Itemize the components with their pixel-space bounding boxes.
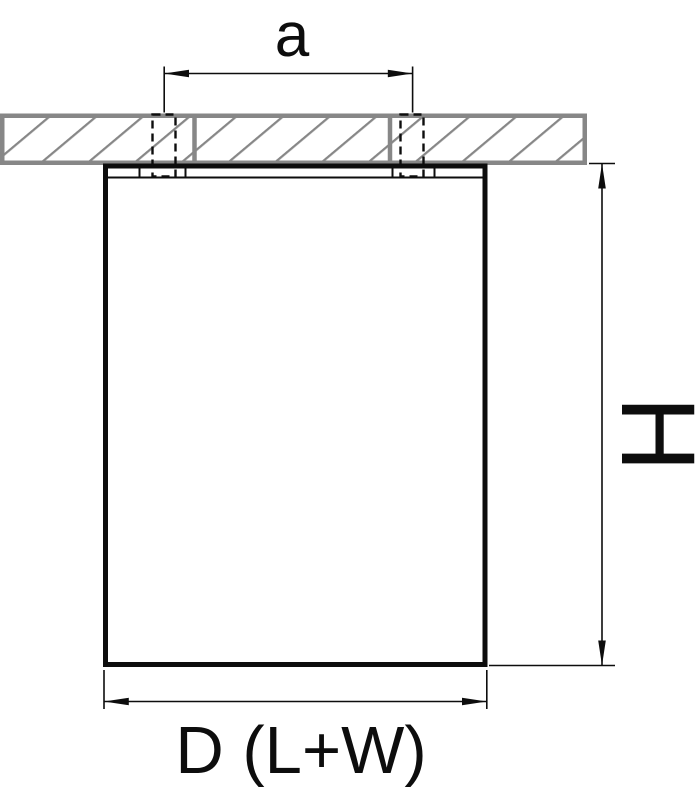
dimension-d: D (L+W) [104,670,487,788]
dimension-a-arrow-right [388,70,413,77]
dimension-a-arrow-left [164,70,189,77]
dimension-a: a [164,1,412,113]
dimension-h: H [489,164,699,666]
dimension-a-label: a [275,1,310,70]
dimension-d-label: D (L+W) [175,713,426,788]
ceiling-section [2,115,585,164]
dimension-d-arrow-right [462,698,487,705]
dimension-h-label: H [599,396,699,472]
dimension-drawing-page: a H D (L+W) [0,0,699,800]
dimension-d-arrow-left [104,698,129,705]
fixture-body [106,166,486,665]
ceiling-hatched-slab [2,116,585,163]
dimension-h-arrow-top [598,164,606,189]
dimension-h-arrow-bottom [598,641,606,666]
fixture-dimension-diagram: a H D (L+W) [0,0,699,800]
